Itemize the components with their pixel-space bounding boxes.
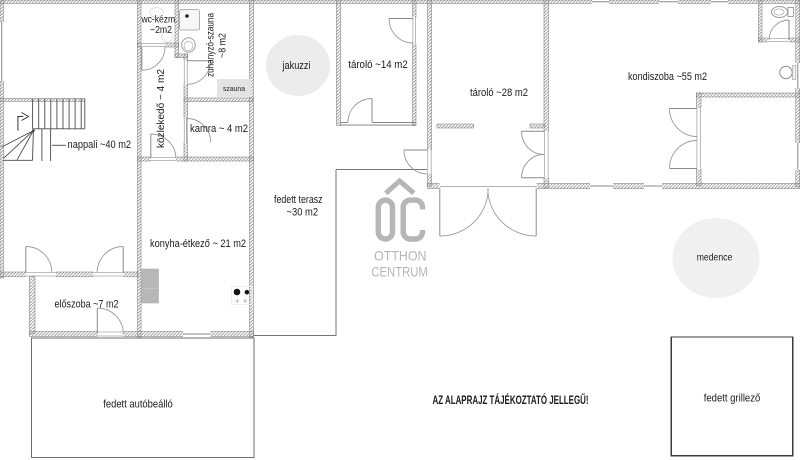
svg-text:fedett grillező: fedett grillező [704, 392, 761, 404]
svg-text:közlekedő ~ 4 m2: közlekedő ~ 4 m2 [155, 69, 167, 148]
svg-text:kondiszoba ~55 m2: kondiszoba ~55 m2 [628, 71, 707, 83]
svg-text:medence: medence [697, 252, 733, 264]
svg-text:~8 m2: ~8 m2 [217, 33, 229, 58]
svg-text:~30 m2: ~30 m2 [287, 207, 319, 219]
svg-text:wc-kézm.: wc-kézm. [141, 15, 178, 26]
svg-text:kamra ~ 4 m2: kamra ~ 4 m2 [190, 123, 248, 135]
svg-text:CENTRUM: CENTRUM [371, 263, 428, 279]
svg-text:konyha-étkező ~ 21 m2: konyha-étkező ~ 21 m2 [150, 238, 246, 250]
svg-text:szauna: szauna [223, 84, 246, 93]
svg-text:OTTHON: OTTHON [374, 248, 427, 264]
svg-text:zuhanyzó-szauna: zuhanyzó-szauna [205, 13, 217, 77]
svg-text:előszoba ~7 m2: előszoba ~7 m2 [55, 298, 119, 310]
svg-text:fedett terasz: fedett terasz [274, 194, 323, 206]
svg-text:tároló ~28 m2: tároló ~28 m2 [470, 87, 528, 99]
svg-text:nappali ~40 m2: nappali ~40 m2 [68, 139, 132, 151]
svg-text:tároló ~14 m2: tároló ~14 m2 [348, 59, 408, 71]
svg-text:fedett autóbeálló: fedett autóbeálló [103, 398, 173, 410]
svg-text:AZ ALAPRAJZ TÁJÉKOZTATÓ JELLEG: AZ ALAPRAJZ TÁJÉKOZTATÓ JELLEGŰ! [433, 394, 589, 407]
svg-text:~2m2: ~2m2 [150, 25, 172, 36]
svg-text:jakuzzi: jakuzzi [282, 60, 311, 72]
